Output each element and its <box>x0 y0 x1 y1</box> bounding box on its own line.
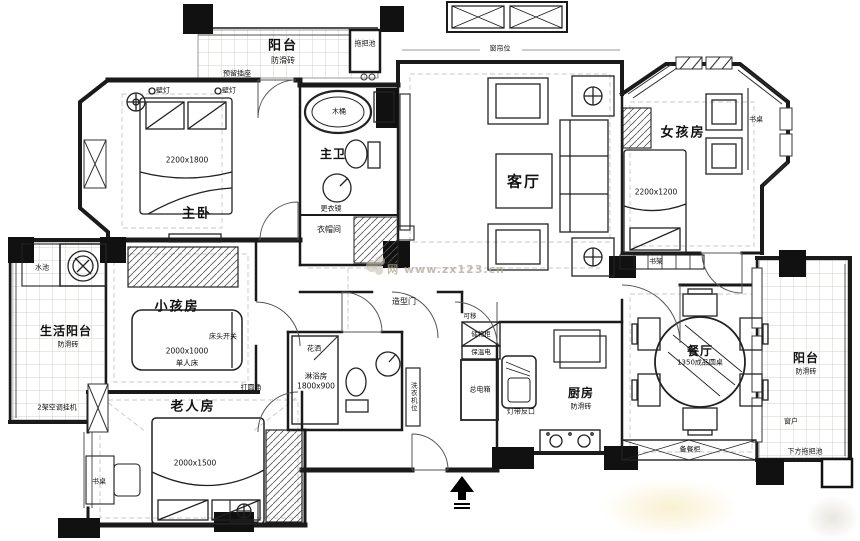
kid-bed-type-label: 单人床 <box>176 359 199 367</box>
master-bed-size-label: 2200x1800 <box>166 156 209 164</box>
curtain-position-label: 窗帘位 <box>490 46 511 53</box>
movable-label: 可移 <box>464 313 477 320</box>
watermark: 网 www.zx123.cn <box>387 261 505 277</box>
elder-bed-size-label: 2000x1500 <box>174 459 217 467</box>
window-label: 窗户 <box>784 419 798 426</box>
sideboard-label: 备餐柜 <box>680 447 701 454</box>
rounded-corner-label: 打圆角 <box>241 385 262 392</box>
room-label-girl-room: 女孩房 <box>660 127 705 140</box>
balcony-top-tile-label: 防滑砖 <box>271 57 295 65</box>
warmer-label: 保温电 <box>471 349 491 356</box>
wall-lamp-left-label: 壁灯 <box>156 88 170 95</box>
bath-cabinet-label: 洗衣机位 <box>410 382 417 412</box>
room-label-balcony-top: 阳台 <box>268 40 298 53</box>
utility-tile-label: 防滑砖 <box>58 342 79 349</box>
styled-door-label: 造型门 <box>392 298 416 306</box>
dining-table-label: 1350成品圆桌 <box>677 360 723 367</box>
ac-units-label: 2架空调挂机 <box>37 405 76 412</box>
room-label-balcony-right: 阳台 <box>793 352 819 364</box>
balcony-right-tile-label: 防滑砖 <box>796 369 817 376</box>
room-label-master-bedroom: 主卧 <box>182 208 212 221</box>
room-label-living-room: 客厅 <box>507 175 541 190</box>
room-label-dining-room: 餐厅 <box>687 345 713 357</box>
shower-head-label: 花洒 <box>307 346 321 353</box>
light-trough-label: 灯带反口 <box>507 409 535 416</box>
room-label-kitchen: 厨房 <box>568 387 594 399</box>
sink-label: 水池 <box>35 265 49 272</box>
reserved-socket-label: 预留插座 <box>223 71 251 78</box>
mop-pool-below-label: 下方拖把池 <box>788 449 823 456</box>
room-label-kid-room: 小孩房 <box>154 301 199 314</box>
wooden-tub-label: 木桶 <box>332 109 346 116</box>
entrance-arrow <box>450 476 474 508</box>
dressing-mirror-label: 更衣镜 <box>321 206 342 213</box>
elder-desk-label: 书桌 <box>92 479 106 486</box>
girl-desk-label: 书桌 <box>749 117 763 124</box>
shower-size-label: 1800x900 <box>297 382 335 390</box>
room-label-utility-balcony: 生活阳台 <box>40 325 92 337</box>
power-box-label: 总电箱 <box>470 387 491 394</box>
bookshelf-label: 书架 <box>649 259 663 266</box>
room-label-master-bath: 主卫 <box>320 148 346 160</box>
bedside-switch-label: 床头开关 <box>209 334 237 341</box>
room-label-cloakroom: 衣帽间 <box>317 226 341 234</box>
kid-bed-size-label: 2000x1000 <box>166 347 209 355</box>
kitchen-tile-label: 防滑砖 <box>571 404 592 411</box>
girl-bed-size-label: 2200x1200 <box>635 188 678 196</box>
mop-pool-label: 拖把池 <box>355 41 376 48</box>
room-label-elder-room: 老人房 <box>170 401 215 414</box>
room-label-shower: 淋浴房 <box>305 372 328 380</box>
floor-plan: 阳台 防滑砖 拖把池 预留插座 壁灯 壁灯 2200x1800 主卧 木桶 主卫… <box>0 0 860 541</box>
storage-cabinet-label: 储物柜 <box>471 331 491 338</box>
wall-lamp-right-label: 壁灯 <box>222 88 236 95</box>
